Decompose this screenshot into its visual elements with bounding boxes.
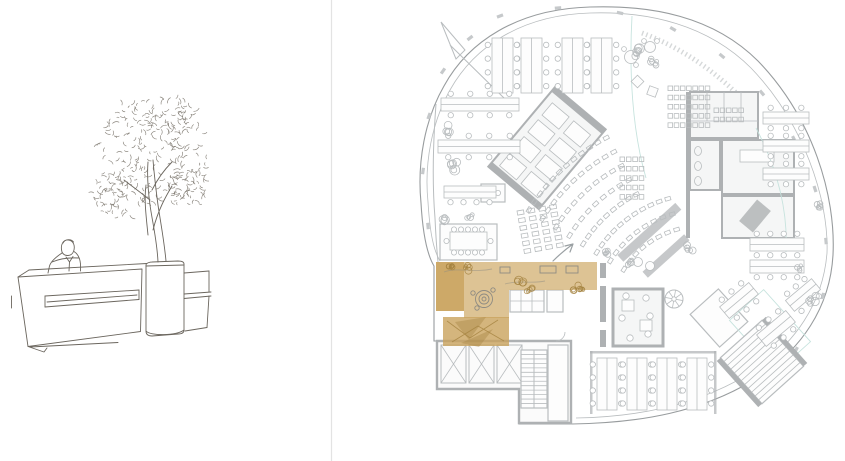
- tree-branch: [153, 186, 172, 230]
- concept-board: { "colors": { "paper": "#ffffff", "divid…: [0, 0, 845, 461]
- spire-canopy: [441, 22, 465, 59]
- west-corridor-wall: [433, 104, 438, 262]
- cafe-tables: [622, 39, 660, 98]
- tree-branch: [124, 180, 150, 200]
- board-canvas: [0, 0, 845, 461]
- door-swing: [556, 332, 565, 341]
- core-corridor: [548, 345, 568, 421]
- tree-branch: [145, 185, 148, 235]
- spiral-stair: [665, 290, 683, 308]
- reception-desk-sketch: [12, 261, 212, 352]
- tree-foliage: [89, 95, 209, 219]
- floor-plan-panel: [420, 6, 833, 424]
- reception-sketch-panel: [12, 95, 212, 352]
- tree-branch: [152, 162, 172, 190]
- tree-sketch: [89, 95, 209, 262]
- planter-sketch: [146, 261, 184, 336]
